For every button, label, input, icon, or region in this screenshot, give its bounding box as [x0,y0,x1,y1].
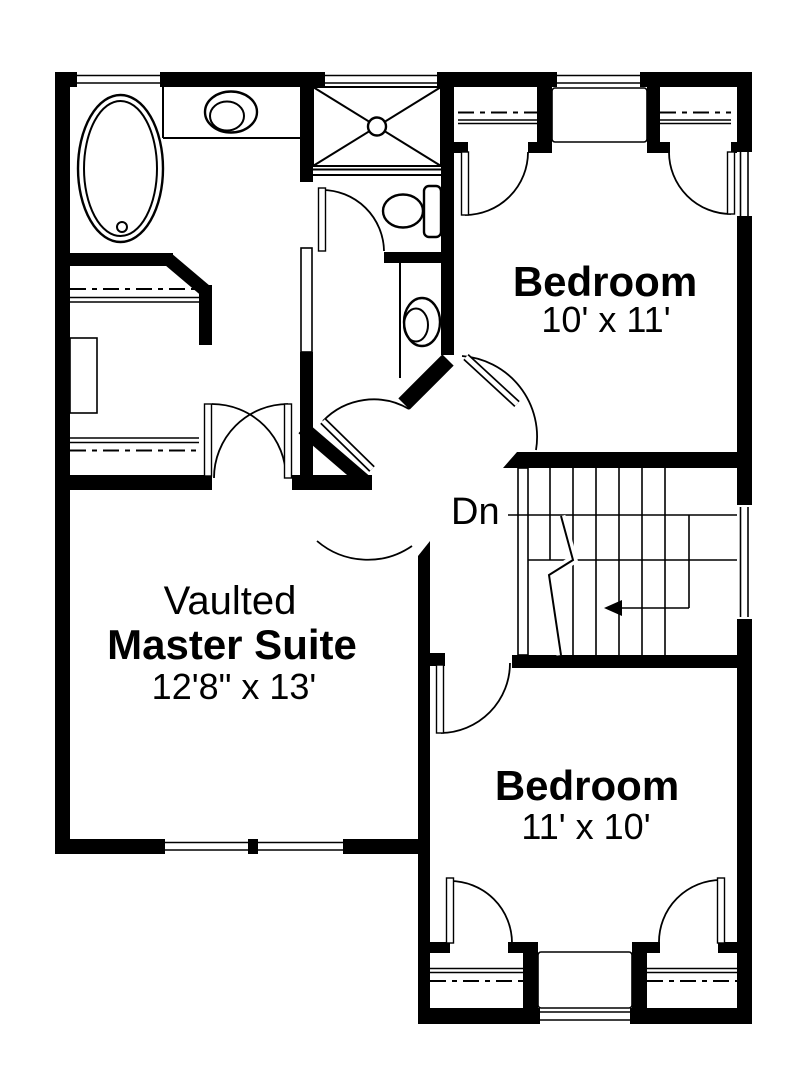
door-b1-closetR-swing [669,152,735,214]
wall-b2-closetSW-jamb2 [508,942,538,953]
wall-hall-a [55,475,212,490]
bedroom2-closets [430,952,737,1008]
master-suite-size: 12'8" x 13' [152,666,317,707]
door-closet-swing [205,404,287,478]
window-icon [557,72,640,87]
bedroom-top-label: Bedroom [513,258,697,305]
wall-b1-closetR-jamb [647,142,670,153]
bedroom1-closets [458,88,731,142]
door-b1-closetL-swing [462,152,529,215]
window-icon [77,72,160,87]
wall-b2-alcove-left [523,952,538,1008]
master-suite-label: Master Suite [107,621,357,668]
wall-vanity-stub [384,252,441,263]
closet-walls [418,85,752,1008]
staircase [508,468,737,655]
window-alcove [552,88,647,142]
wall-bedroom2-door-stub [430,653,445,666]
wall-b2-alcove-right [632,952,647,1008]
wall-mid-halfwall [301,248,312,352]
bedroom-bottom-size: 11' x 10' [521,806,650,847]
wall-bedroom1-west [441,72,454,355]
walk-in-closet [70,289,199,451]
door-b2-closetSE-swing [659,878,725,943]
stair-break-line [549,516,573,655]
master-suite-prefix: Vaulted [164,579,297,623]
shower-stall-icon [313,87,441,175]
wall-hall-b [292,475,372,490]
window-icon [540,1008,630,1024]
window-alcove [538,952,632,1008]
door-b2-closetSW-swing [447,878,513,943]
arrow-left-icon [604,600,622,616]
bedroom-bottom-label: Bedroom [495,762,679,809]
basin-sink-icon [404,298,440,346]
bathtub-icon [78,95,163,242]
wall-b2-closetSE-jamb [632,942,660,953]
wall-mid-lower [300,352,313,480]
wall-closet-stub [199,285,212,345]
window-icon [737,505,752,619]
closet-shelf-unit [70,338,97,413]
wall-b1-alcove-left [537,85,552,153]
wall-master-east [418,541,430,1008]
stairs-down-label: Dn [451,491,500,533]
shower-room [313,87,441,378]
wall-mid-upper [300,87,313,182]
wall-stairs-south [512,655,752,668]
floor-plan-drawing: Bedroom 10' x 11' Vaulted Master Suite 1… [0,0,800,1077]
window-icon [737,152,752,216]
window-icon [325,72,437,87]
window-icon [258,839,343,854]
door-bedroom2-swing [437,663,511,733]
door-master-entry-arc [317,541,412,560]
wall-hall-wedge-right [404,360,448,404]
toilet-icon [383,186,441,237]
stair-path-down [508,515,737,616]
stair-side-wall [518,468,528,655]
wall-left [55,72,70,854]
wall-stairs-north [503,452,752,468]
master-bathroom [78,87,300,242]
floor-plan-page: Bedroom 10' x 11' Vaulted Master Suite 1… [0,0,800,1077]
wall-b2-closetSW-jamb [418,942,450,953]
vanity-sink-icon [205,92,257,133]
door-bedroom1-swing [462,356,537,450]
bedroom-top-size: 10' x 11' [541,299,670,340]
door-toilet-swing [319,188,385,251]
wall-bath-south [55,253,173,266]
window-icon [165,839,248,854]
